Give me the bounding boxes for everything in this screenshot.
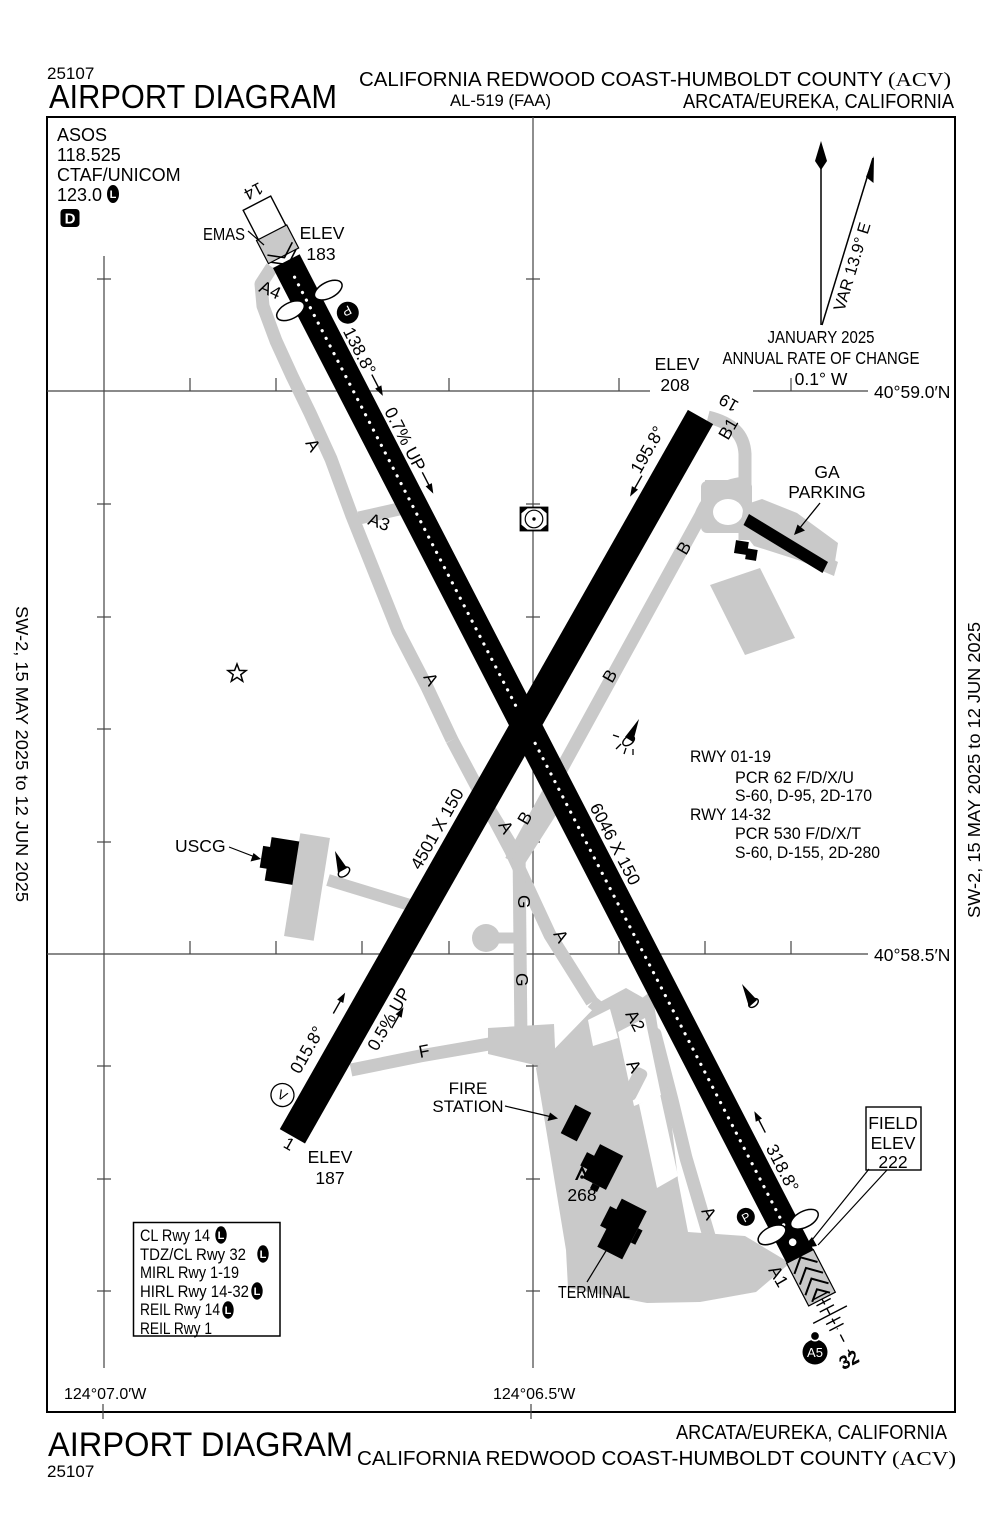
svg-text:187: 187: [315, 1168, 344, 1188]
svg-text:L: L: [254, 1286, 261, 1298]
svg-text:TDZ/CL Rwy 32: TDZ/CL Rwy 32: [140, 1245, 246, 1264]
svg-text:L: L: [218, 1230, 225, 1242]
svg-text:222: 222: [878, 1152, 907, 1172]
svg-text:MIRL Rwy 1-19: MIRL Rwy 1-19: [140, 1263, 239, 1282]
svg-text:118.525: 118.525: [57, 145, 121, 165]
svg-text:AIRPORT DIAGRAM: AIRPORT DIAGRAM: [49, 78, 337, 115]
svg-text:40°59.0′N: 40°59.0′N: [874, 382, 950, 402]
svg-text:183: 183: [306, 244, 335, 264]
svg-text:G: G: [514, 895, 534, 909]
svg-text:ASOS: ASOS: [57, 125, 107, 145]
svg-text:ELEV: ELEV: [871, 1133, 916, 1153]
svg-text:ELEV: ELEV: [300, 223, 345, 243]
svg-text:D: D: [65, 211, 76, 228]
svg-text:ELEV: ELEV: [655, 354, 700, 374]
svg-text:CALIFORNIA REDWOOD COAST-HUMBO: CALIFORNIA REDWOOD COAST-HUMBOLDT COUNTY: [359, 68, 883, 91]
svg-text:AIRPORT DIAGRAM: AIRPORT DIAGRAM: [48, 1426, 353, 1464]
svg-text:ARCATA/EUREKA, CALIFORNIA: ARCATA/EUREKA, CALIFORNIA: [676, 1421, 947, 1444]
svg-text:AL-519 (FAA): AL-519 (FAA): [450, 92, 551, 110]
svg-text:RWY 14-32: RWY 14-32: [690, 805, 771, 824]
svg-text:EMAS: EMAS: [203, 224, 245, 244]
svg-text:ARCATA/EUREKA, CALIFORNIA: ARCATA/EUREKA, CALIFORNIA: [683, 90, 954, 113]
svg-text:(ACV): (ACV): [892, 1448, 956, 1470]
svg-text:(ACV): (ACV): [888, 69, 951, 91]
svg-text:HIRL Rwy 14-32: HIRL Rwy 14-32: [140, 1282, 249, 1301]
svg-text:REIL Rwy 14: REIL Rwy 14: [140, 1300, 220, 1319]
svg-text:JANUARY 2025: JANUARY 2025: [768, 327, 875, 347]
svg-text:A5: A5: [807, 1345, 823, 1360]
svg-text:PCR 62 F/D/X/U: PCR 62 F/D/X/U: [735, 768, 854, 787]
svg-text:STATION: STATION: [432, 1097, 503, 1116]
svg-text:SW-2, 15 MAY 2025 to 12 JUN: SW-2, 15 MAY 2025 to 12 JUN 2025: [964, 622, 984, 918]
svg-text:CALIFORNIA REDWOOD COAST-HUMBO: CALIFORNIA REDWOOD COAST-HUMBOLDT COUNTY: [357, 1447, 887, 1470]
svg-text:124°06.5′W: 124°06.5′W: [493, 1386, 576, 1403]
svg-text:ANNUAL RATE OF CHANGE: ANNUAL RATE OF CHANGE: [723, 348, 920, 368]
svg-text:268: 268: [567, 1185, 596, 1205]
svg-text:PARKING: PARKING: [788, 482, 865, 502]
svg-text:S-60, D-155, 2D-280: S-60, D-155, 2D-280: [735, 843, 880, 862]
svg-text:TERMINAL: TERMINAL: [558, 1282, 630, 1302]
svg-text:PCR 530 F/D/X/T: PCR 530 F/D/X/T: [735, 824, 861, 843]
svg-text:GA: GA: [814, 462, 840, 482]
svg-text:S-60, D-95, 2D-170: S-60, D-95, 2D-170: [735, 786, 872, 805]
svg-text:25107: 25107: [47, 1462, 94, 1481]
svg-text:40°58.5′N: 40°58.5′N: [874, 945, 950, 965]
svg-text:0.1° W: 0.1° W: [795, 369, 848, 389]
svg-text:FIRE: FIRE: [449, 1079, 488, 1098]
svg-text:RWY 01-19: RWY 01-19: [690, 747, 771, 766]
svg-text:124°07.0′W: 124°07.0′W: [64, 1386, 147, 1403]
svg-text:L: L: [110, 189, 117, 201]
svg-text:CTAF/UNICOM: CTAF/UNICOM: [57, 165, 181, 185]
svg-text:REIL Rwy 1: REIL Rwy 1: [140, 1319, 212, 1338]
svg-text:FIELD: FIELD: [868, 1113, 918, 1133]
svg-text:L: L: [225, 1305, 232, 1317]
svg-text:ELEV: ELEV: [308, 1147, 353, 1167]
svg-text:L: L: [260, 1249, 267, 1261]
svg-text:123.0: 123.0: [57, 185, 102, 205]
svg-text:208: 208: [660, 375, 689, 395]
svg-text:SW-2, 15 MAY 2025 to 12 JUN: SW-2, 15 MAY 2025 to 12 JUN 2025: [12, 606, 32, 902]
svg-text:CL Rwy 14: CL Rwy 14: [140, 1226, 210, 1245]
svg-text:G: G: [512, 973, 532, 987]
svg-text:USCG: USCG: [175, 836, 226, 856]
